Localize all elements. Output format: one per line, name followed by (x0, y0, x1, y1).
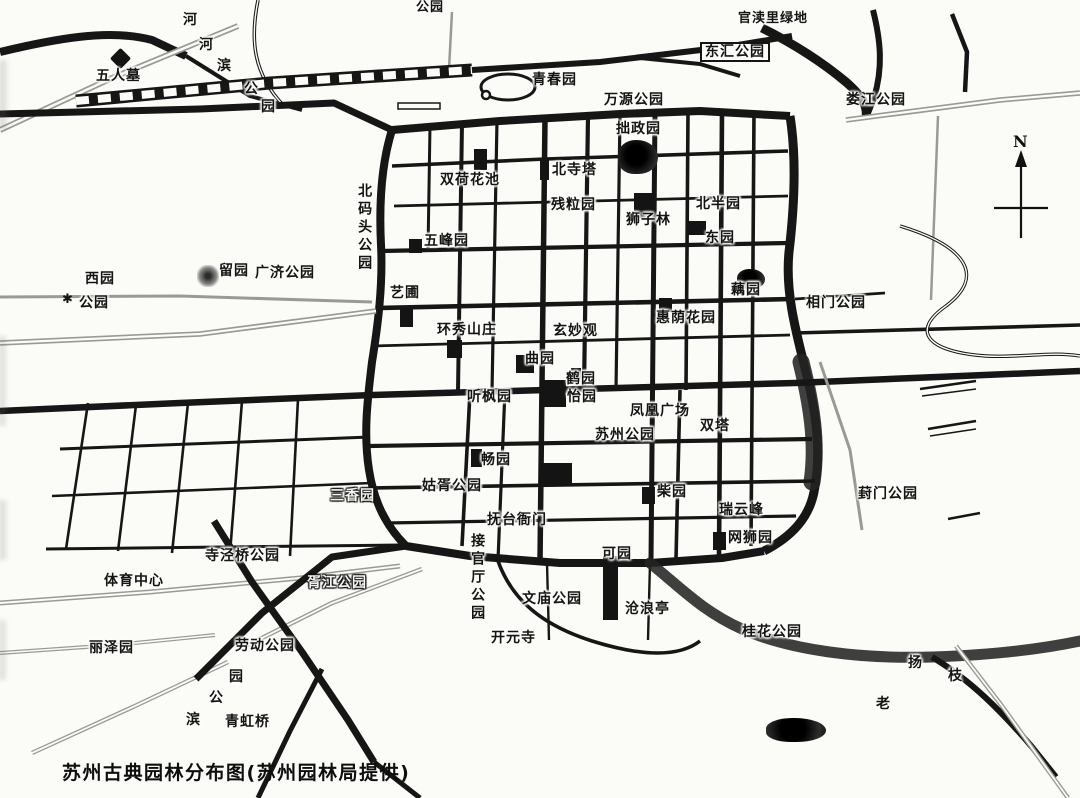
map-label-bin-park-char-3: 滨 (186, 712, 201, 728)
map-label-beimatou-park: 北码头公园 (356, 183, 372, 273)
map-label-jieguanting-park: 接官厅公园 (469, 533, 485, 623)
map-label-wurenmu: 五人墓 (96, 68, 141, 84)
map-label-futai-yamen: 抚台衙门 (487, 512, 547, 528)
map-label-quyuan: 曲园 (525, 351, 555, 367)
map-label-canliyuan: 残粒园 (551, 197, 596, 213)
map-label-ouyuan: 藕园 (731, 282, 761, 298)
map-caption: 苏州古典园林分布图(苏州园林局提供) (62, 758, 410, 785)
map-label-xiangmen-park: 相门公园 (806, 295, 866, 311)
compass-arrow-icon (988, 150, 1058, 250)
map-label-kaiyuansi: 开元寺 (491, 630, 536, 646)
map-label-dongyuan: 东园 (705, 230, 735, 246)
map-label-sanxiangyuan: 三香园 (330, 488, 375, 504)
map-label-shuangta: 双塔 (700, 418, 730, 434)
map-label-xujiang-park: 胥江公园 (307, 575, 367, 591)
map-label-qinghongqiao: 青虹桥 (225, 714, 270, 730)
map-label-laodong-park: 劳动公园 (235, 638, 295, 654)
map-label-heyuan: 鹤园 (566, 371, 596, 387)
map-label-yangzhi-char-2: 枝 (948, 668, 963, 684)
map-label-riverside-park-char-2: 河 (199, 37, 214, 53)
map-label-riverside-park-char-1: 河 (183, 12, 198, 28)
map-label-riverside-park-char-4: 公 (244, 81, 259, 97)
map-label-riverside-park-char-3: 滨 (217, 58, 232, 74)
map-label-lao-char: 老 (876, 696, 891, 712)
map-label-wenmiao-park: 文庙公园 (522, 591, 582, 607)
map-label-bin-park-char-1: 园 (229, 669, 244, 685)
map-label-huanxiu-shanzhuang: 环秀山庄 (437, 322, 497, 338)
map-label-xiyuan-park: 公园 (79, 295, 109, 311)
map-label-shizilin: 狮子林 (626, 212, 671, 228)
map-label-yipu: 艺圃 (390, 285, 420, 301)
map-labels-layer: 五人墓河河滨公园公园青春园万源公园东汇公园官渎里绿地娄江公园拙政园北寺塔双荷花池… (0, 0, 1080, 798)
map-label-guxu-park: 姑胥公园 (422, 478, 482, 494)
map-label-lizeyuan: 丽泽园 (89, 640, 134, 656)
map-label-wufengyuan: 五峰园 (424, 233, 469, 249)
map-label-fenghuang-square: 凤凰广场 (630, 403, 690, 419)
map-label-ruiyunfeng: 瑞云峰 (719, 502, 764, 518)
map-label-xuanmiaoguan: 玄妙观 (553, 323, 598, 339)
map-label-suzhou-park: 苏州公园 (595, 427, 655, 443)
map-label-chaiyuan: 柴园 (657, 484, 687, 500)
map-label-clipped-park-top: 公园 (416, 1, 444, 16)
map-label-keyuan: 可园 (602, 546, 632, 562)
map-label-qingchunyuan: 青春园 (532, 72, 577, 88)
map-label-huiyin-garden: 惠荫花园 (656, 310, 716, 326)
map-label-canglangting: 沧浪亭 (625, 601, 670, 617)
map-label-guihua-park: 桂花公园 (742, 624, 802, 640)
map-label-changyuan: 畅园 (481, 452, 511, 468)
map-label-wanyuan-park: 万源公园 (604, 92, 664, 108)
map-label-guangji-park: 广济公园 (255, 265, 315, 281)
map-label-bin-park-char-2: 公 (209, 690, 224, 706)
map-label-riverside-park-char-5: 园 (261, 99, 276, 115)
map-label-loujiang-park: 娄江公园 (846, 92, 906, 108)
map-label-shuanghehuachi: 双荷花池 (440, 172, 500, 188)
map-label-liuyuan: 留园 (219, 263, 249, 279)
map-label-yangzhi-char-1: 扬 (908, 655, 923, 671)
map-label-sijingqiao-park: 寺泾桥公园 (205, 548, 280, 564)
compass-north-label: N (1013, 132, 1028, 151)
map-root: ✱ 五人墓河河滨公园公园青春园万源公园东汇公园官渎里绿地娄江公园拙政园北寺塔双荷… (0, 0, 1080, 798)
map-label-fengmen-park: 葑门公园 (858, 486, 918, 502)
map-label-zhuozhengyuan: 拙政园 (616, 121, 661, 137)
map-label-yiyuan: 怡园 (567, 389, 597, 405)
map-label-wangshiyuan: 网狮园 (728, 530, 773, 546)
map-label-beibanyuan: 北半园 (696, 196, 741, 212)
map-label-tingfengyuan: 听枫园 (467, 389, 512, 405)
map-label-xiyuan: 西园 (85, 271, 115, 287)
map-label-sports-center: 体育中心 (104, 573, 164, 589)
compass: N (988, 132, 1058, 247)
map-label-guanduli-green: 官渎里绿地 (738, 12, 808, 27)
map-label-beisita: 北寺塔 (552, 162, 597, 178)
map-label-donghui-park: 东汇公园 (700, 42, 770, 62)
